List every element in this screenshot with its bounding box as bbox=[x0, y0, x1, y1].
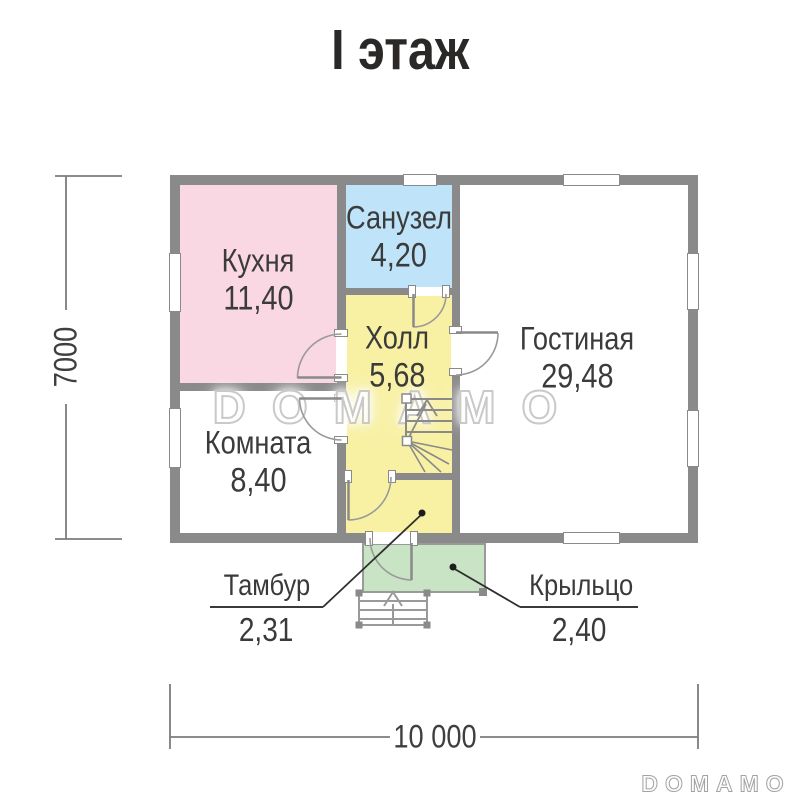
porch-fill bbox=[362, 543, 486, 593]
door-jamb bbox=[344, 470, 352, 483]
vestibule-name: Тамбур bbox=[223, 568, 310, 604]
porch-area: 2,40 bbox=[552, 609, 607, 651]
porch-posts bbox=[356, 588, 488, 629]
living-area: 29,48 bbox=[541, 358, 613, 396]
porch-label: Крыльцо 2,40 bbox=[520, 568, 638, 651]
page-title-text: I этаж bbox=[331, 20, 469, 80]
porch-label-underline bbox=[520, 606, 638, 608]
living-label: Гостиная 29,48 bbox=[510, 321, 644, 396]
door-jamb bbox=[408, 285, 416, 298]
window-left-bedroom bbox=[169, 408, 181, 468]
window-top-bathroom bbox=[403, 174, 437, 186]
window-top-living bbox=[563, 174, 620, 186]
hall-label: Холл 5,68 bbox=[359, 320, 434, 395]
door-jamb bbox=[388, 470, 396, 483]
door-jamb bbox=[410, 531, 418, 546]
bedroom-label: Комната 8,40 bbox=[195, 425, 320, 500]
vestibule-label: Тамбур 2,31 bbox=[210, 568, 323, 651]
living-door-opening bbox=[451, 330, 461, 370]
dimension-height: 7000 bbox=[48, 321, 85, 392]
door-jamb bbox=[449, 326, 462, 334]
window-right-living-upper bbox=[687, 253, 699, 310]
hall-area: 5,68 bbox=[369, 357, 425, 395]
vestibule-room-fill bbox=[346, 480, 452, 533]
window-bottom-living bbox=[563, 532, 620, 544]
kitchen-door-opening bbox=[336, 333, 347, 378]
brand-logo: DOMAMO bbox=[641, 771, 790, 798]
window-right-living-lower bbox=[687, 410, 699, 467]
porch-steps bbox=[359, 592, 427, 625]
bedroom-area: 8,40 bbox=[230, 462, 286, 500]
window-left-kitchen bbox=[169, 253, 181, 312]
vestibule-door-opening bbox=[348, 472, 390, 481]
kitchen-label: Кухня 11,40 bbox=[215, 243, 301, 318]
entry-door-opening bbox=[370, 532, 412, 544]
door-jamb bbox=[442, 285, 450, 298]
wall-exterior-right bbox=[688, 175, 698, 543]
page-title: I этаж bbox=[0, 20, 800, 80]
door-jamb bbox=[449, 368, 462, 376]
bathroom-label: Санузел 4,20 bbox=[337, 200, 462, 275]
bathroom-name: Санузел bbox=[346, 200, 452, 237]
vestibule-label-underline bbox=[210, 606, 323, 608]
hall-name: Холл bbox=[365, 320, 429, 357]
door-jamb bbox=[334, 436, 348, 444]
door-jamb bbox=[334, 329, 348, 337]
porch-name: Крыльцо bbox=[529, 568, 633, 604]
vestibule-area: 2,31 bbox=[239, 609, 294, 651]
bathroom-area: 4,20 bbox=[371, 237, 427, 275]
bathroom-door-opening bbox=[413, 287, 445, 296]
kitchen-area: 11,40 bbox=[223, 280, 293, 318]
bedroom-name: Комната bbox=[205, 425, 312, 462]
door-jamb bbox=[365, 531, 373, 546]
living-name: Гостиная bbox=[520, 321, 634, 358]
dimension-height-text: 7000 bbox=[48, 327, 85, 388]
floor-plan-page: I этаж DOMAMO bbox=[0, 0, 800, 800]
wall-exterior-left bbox=[170, 175, 180, 543]
dimension-width-text: 10 000 bbox=[393, 719, 476, 756]
dimension-width: 10 000 bbox=[386, 719, 484, 756]
kitchen-name: Кухня bbox=[222, 243, 295, 280]
